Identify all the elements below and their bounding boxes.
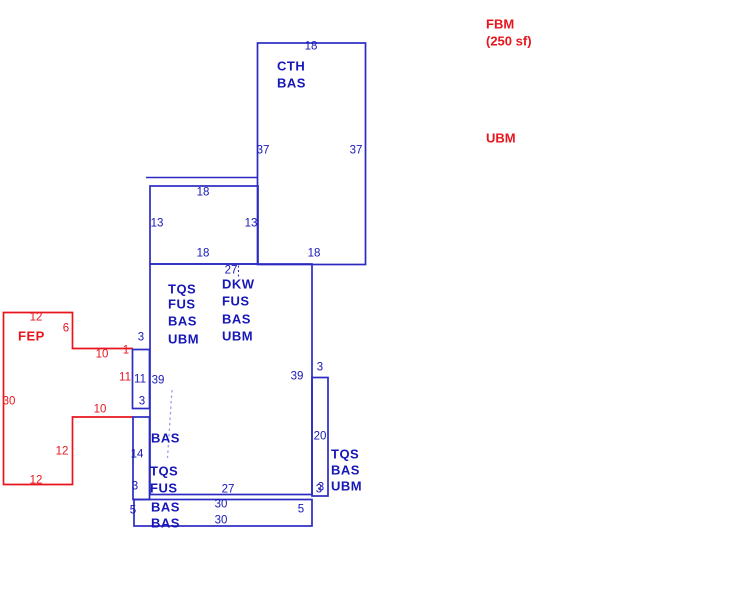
dimension-label: 3	[139, 396, 145, 408]
area-type-label: FUS	[150, 482, 178, 495]
area-type-label: UBM	[331, 480, 362, 493]
area-type-label: FEP	[18, 330, 45, 343]
dimension-label: 10	[96, 349, 109, 361]
dimension-label: 3	[317, 362, 323, 374]
dimension-label: 12	[30, 475, 43, 487]
dimension-label: 18	[197, 248, 210, 260]
dimension-label: 18	[197, 187, 210, 199]
dimension-label: 13	[245, 218, 258, 230]
sketch-canvas[interactable]: 1837371818131318273939273311314332033030…	[0, 0, 731, 602]
legend-fbm-area-label: (250 sf)	[486, 35, 532, 48]
area-type-label: CTH	[277, 60, 305, 73]
area-type-label: TQS	[168, 283, 196, 296]
dimension-label: 12	[56, 446, 69, 458]
area-type-label: BAS	[151, 501, 180, 514]
area-type-label: FUS	[168, 298, 196, 311]
dimension-label: 5	[298, 504, 304, 516]
dimension-label: 18	[308, 248, 321, 260]
sketch-linework	[0, 0, 731, 602]
dimension-label: 1	[123, 345, 129, 357]
area-type-label: TQS	[150, 465, 178, 478]
area-type-label: BAS	[168, 315, 197, 328]
area-type-label: DKW	[222, 278, 255, 291]
area-type-label: BAS	[151, 517, 180, 530]
dimension-label: 18	[305, 41, 318, 53]
dimension-label: 37	[350, 145, 363, 157]
dimension-label: 3	[138, 332, 144, 344]
dimension-label: 3	[318, 482, 324, 494]
dimension-label: 10	[94, 404, 107, 416]
area-type-label: UBM	[168, 333, 199, 346]
dimension-label: 13	[151, 218, 164, 230]
legend-fbm-label: FBM	[486, 18, 514, 31]
dimension-label: 11	[119, 372, 131, 384]
dimension-label: 3	[132, 481, 138, 493]
dimension-label: 11	[134, 374, 146, 386]
dimension-label: 6	[63, 323, 69, 335]
dimension-label: 30	[3, 396, 16, 408]
dimension-label: 27	[222, 484, 235, 496]
area-type-label: BAS	[151, 432, 180, 445]
interior-dashed-line[interactable]	[168, 390, 173, 458]
dimension-label: 39	[291, 371, 304, 383]
area-type-label: BAS	[222, 313, 251, 326]
dimension-label: 27	[225, 265, 238, 277]
dimension-label: 14	[131, 449, 144, 461]
area-type-label: FUS	[222, 295, 250, 308]
area-type-label: BAS	[277, 77, 306, 90]
dimension-label: 30	[215, 499, 228, 511]
dimension-label: 12	[30, 312, 43, 324]
dimension-label: 30	[215, 515, 228, 527]
legend-ubm-label: UBM	[486, 132, 516, 145]
area-type-label: BAS	[331, 464, 360, 477]
dimension-label: 20	[314, 431, 327, 443]
dimension-label: 39	[152, 375, 165, 387]
area-type-label: TQS	[331, 448, 359, 461]
dimension-label: 5	[130, 505, 136, 517]
dimension-label: 37	[257, 145, 270, 157]
area-type-label: UBM	[222, 330, 253, 343]
